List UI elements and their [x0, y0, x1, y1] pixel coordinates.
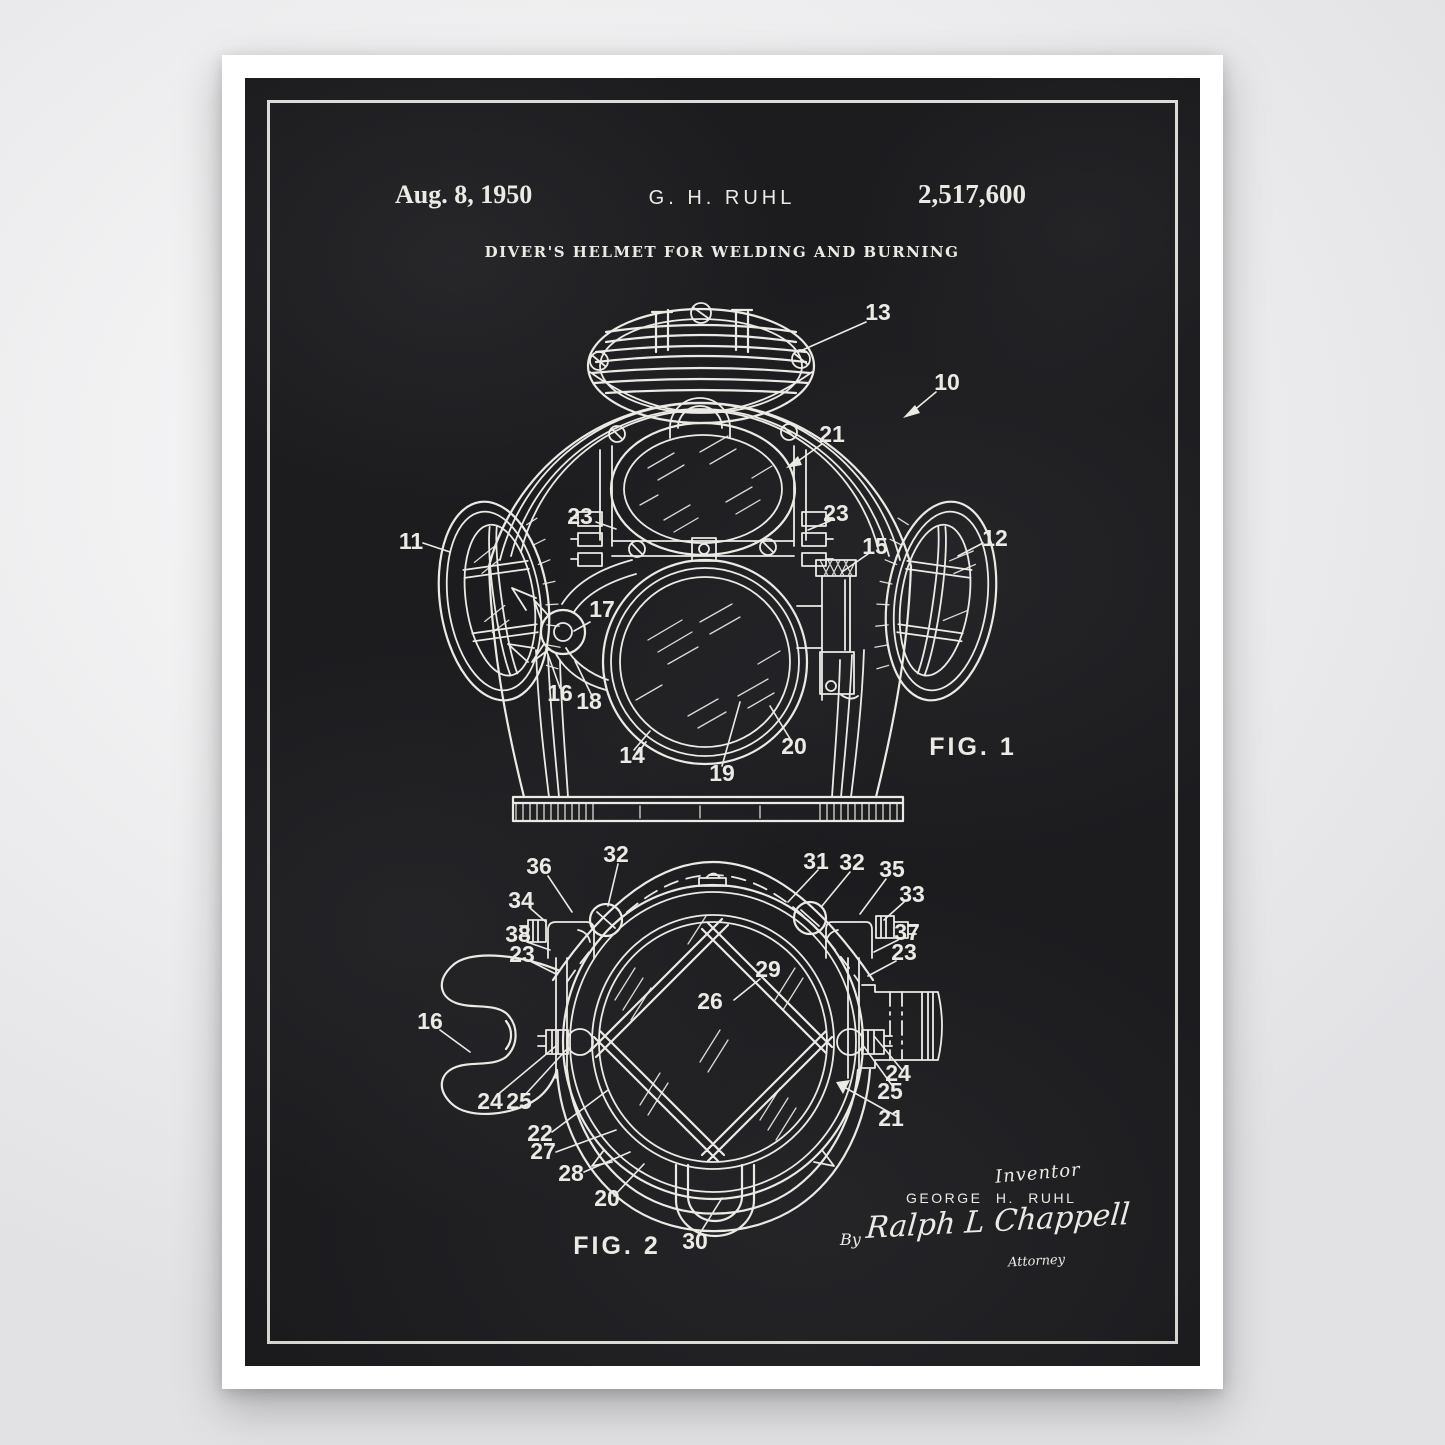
figure2-drawing: 36 32 31 32 35 34 33 38 37 23 23 29 26 1…: [417, 841, 942, 1260]
glass-hatching-plan: [615, 916, 803, 1140]
faceplate-glass-hatching: [636, 604, 780, 728]
clamp-band: [612, 538, 794, 561]
fig2-callout-16: 16: [417, 1008, 443, 1034]
patent-drawing: 13 10 21 23 23 15 11 12 17 16 18 14 19 2…: [0, 0, 1445, 1445]
fig1-callout-13: 13: [865, 299, 891, 325]
fig2-callout-25-left: 25: [506, 1088, 532, 1114]
fig2-callout-31: 31: [803, 848, 829, 874]
fig2-callout-36: 36: [526, 853, 552, 879]
fig2-callout-34: 34: [508, 887, 534, 913]
upper-window-hinge-plates: [600, 424, 806, 546]
fig1-callout-12: 12: [982, 525, 1008, 551]
fig1-callout-11: 11: [399, 528, 424, 554]
fig2-caption: FIG. 2: [573, 1232, 660, 1260]
fig1-callout-20: 20: [781, 733, 807, 759]
faceplate-ring: [611, 568, 799, 756]
helmet-dome-outline: [489, 403, 911, 797]
fig1-callout-23-left: 23: [567, 503, 593, 529]
fig2-callout-26: 26: [697, 988, 723, 1014]
fig2-callout-23-right: 23: [891, 939, 917, 965]
page-background: Aug. 8, 1950 G. H. RUHL 2,517,600 DIVER'…: [0, 0, 1445, 1445]
side-cylinder-fitting: [862, 985, 942, 1068]
fig2-callout-35: 35: [879, 856, 905, 882]
fig1-callout-23-right: 23: [823, 500, 849, 526]
fig1-callout-16: 16: [547, 680, 573, 706]
by-script-label: By: [840, 1230, 861, 1249]
fig2-callout-20: 20: [594, 1185, 620, 1211]
fig2-callout-28: 28: [558, 1160, 584, 1186]
fig1-callout-19: 19: [709, 760, 735, 786]
fig1-callout-15: 15: [862, 533, 888, 559]
fig1-callout-21: 21: [819, 421, 845, 447]
handle-guard: [676, 1165, 754, 1236]
fig1-callout-17: 17: [589, 596, 615, 622]
upper-window-ring-inner: [624, 435, 782, 543]
fig1-callout-18: 18: [576, 688, 602, 714]
figure1-drawing: 13 10 21 23 23 15 11 12 17 16 18 14 19 2…: [399, 299, 1017, 821]
fig2-callout-33: 33: [899, 881, 925, 907]
fig1-callout-14: 14: [619, 742, 645, 768]
faceplate-glass-edge: [620, 577, 790, 747]
helmet-base-hatching: [516, 804, 897, 820]
fig2-callout-32-right: 32: [839, 849, 865, 875]
fig2-callout-30: 30: [682, 1228, 708, 1254]
fig2-callout-27: 27: [530, 1138, 556, 1164]
attorney-script-label: Attorney: [1008, 1253, 1066, 1271]
helmet-neck-contours: [536, 650, 864, 797]
fig1-callout-10: 10: [934, 369, 960, 395]
fig2-callout-29: 29: [755, 956, 781, 982]
upper-window-glass-hatching: [640, 436, 772, 532]
fig2-callout-32-left: 32: [603, 841, 629, 867]
fig2-callout-25-right: 25: [877, 1078, 903, 1104]
fig2-callout-21: 21: [878, 1105, 904, 1131]
upper-window-ring-outer: [611, 423, 795, 555]
fig2-callout-24-left: 24: [477, 1088, 503, 1114]
faceplate-band-outer: [603, 560, 807, 764]
fig2-callout-23-left: 23: [509, 941, 535, 967]
fig1-caption: FIG. 1: [929, 733, 1016, 761]
